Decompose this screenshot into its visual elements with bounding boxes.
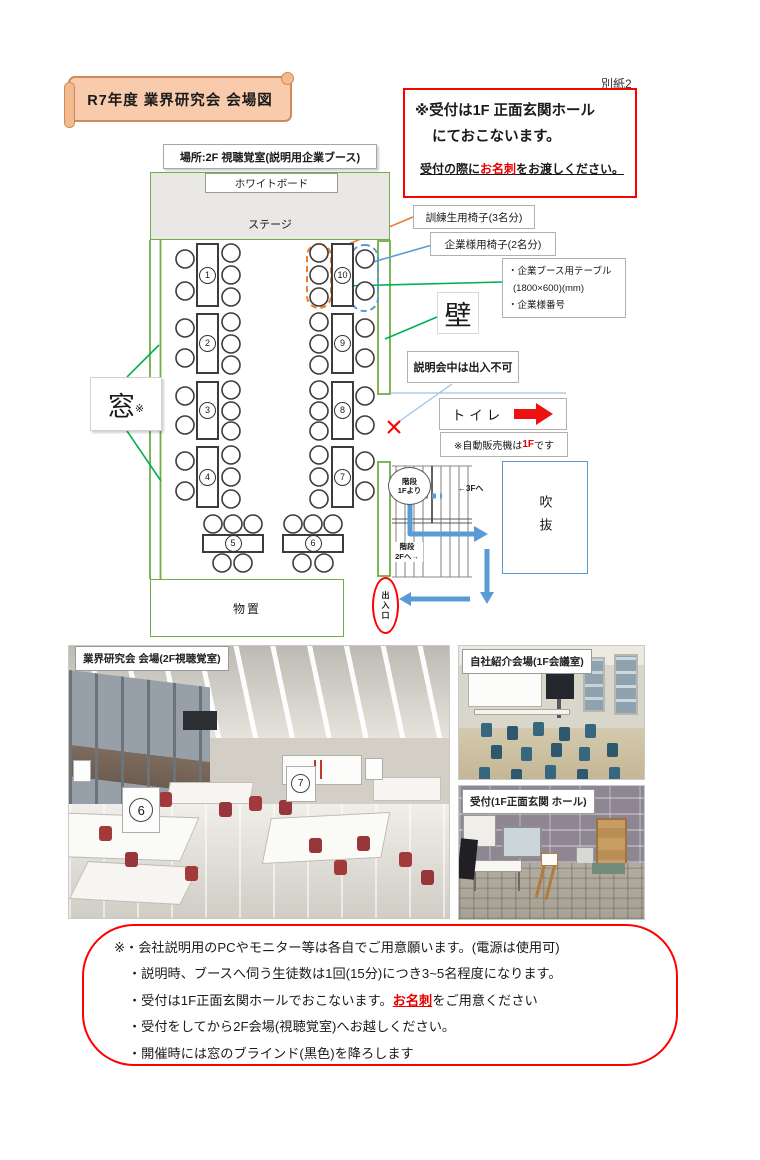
toilet-arrow-icon bbox=[514, 403, 554, 425]
reception-notice-line1: ※受付は1F 正面玄関ホール bbox=[415, 99, 627, 120]
photo1-sign-6: 6 bbox=[122, 787, 160, 833]
photo1-poster-b bbox=[320, 760, 322, 779]
location-label: 場所:2F 視聴覚室(説明用企業ブース) bbox=[163, 144, 377, 169]
booth-table-4: 4 bbox=[196, 446, 219, 508]
storage-label: 物置 bbox=[150, 579, 344, 637]
stairs-from-1f-bubble: 階段1Fより bbox=[388, 467, 431, 505]
page-title: R7年度 業界研究会 会場図 bbox=[87, 89, 273, 110]
photo2-caption: 自社紹介会場(1F会議室) bbox=[462, 649, 592, 674]
photo1-table-mid bbox=[166, 782, 253, 804]
toilet-box: トイレ bbox=[439, 398, 567, 430]
photo3-table-legs bbox=[474, 872, 476, 891]
photo-venue-2f: 6 7 bbox=[68, 645, 450, 919]
reception-notice-line2: にておこないます。 bbox=[415, 125, 627, 146]
reception-notice-box: ※受付は1F 正面玄関ホール にておこないます。 受付の際にお名刺をお渡しくださ… bbox=[403, 88, 637, 198]
booth-table-5: 5 bbox=[202, 534, 264, 553]
booth-table-8: 8 bbox=[331, 381, 354, 440]
notes-line-1: ※・会社説明用のPCやモニター等は各自でご用意願います。(電源は使用可) bbox=[114, 935, 658, 961]
photo1-sign-small bbox=[73, 760, 91, 782]
notes-line-2: ・説明時、ブースへ伺う生徒数は1回(15分)につき3~5名程度になります。 bbox=[114, 961, 658, 987]
entrance-exit-label: 出入口 bbox=[372, 577, 399, 634]
notes-line-3: ・受付は1F正面玄関ホールでおこないます。お名刺をご用意ください bbox=[114, 988, 658, 1014]
photo3-door-mat bbox=[592, 863, 625, 874]
booth-table-1: 1 bbox=[196, 243, 219, 307]
photo1-table-left2 bbox=[69, 861, 199, 905]
no-entry-cross bbox=[388, 421, 400, 433]
booth-table-2: 2 bbox=[196, 313, 219, 374]
legend-company-chairs: 企業様用椅子(2名分) bbox=[430, 232, 556, 256]
photo2-whiteboard bbox=[468, 673, 542, 708]
booth-table-6: 6 bbox=[282, 534, 344, 553]
notes-line-4: ・受付をしてから2F会場(視聴覚室)へお越しください。 bbox=[114, 1014, 658, 1040]
booth-table-7: 7 bbox=[331, 446, 354, 508]
photo2-chairs bbox=[481, 723, 492, 737]
legend-booth-table: ・企業ブース用テーブル (1800×600)(mm) ・企業様番号 bbox=[502, 258, 626, 318]
photo1-sign-small2 bbox=[365, 758, 383, 780]
atrium-label: 吹抜 bbox=[502, 461, 588, 574]
booth-table-10: 10 bbox=[331, 243, 354, 307]
photo3-display-case bbox=[502, 826, 543, 858]
photo2-tv bbox=[546, 670, 574, 699]
photo1-table-far bbox=[373, 777, 441, 801]
photo1-caption: 業界研究会 会場(2F視聴覚室) bbox=[75, 646, 229, 671]
photo1-chairs bbox=[99, 826, 112, 841]
photo1-tv-monitor bbox=[183, 711, 217, 730]
stairs-to-3f-label: ←3Fへ bbox=[458, 483, 483, 494]
wall-label: 壁 bbox=[437, 292, 479, 334]
photo3-caption: 受付(1F正面玄関 ホール) bbox=[462, 789, 595, 814]
legend-trainee-chairs: 訓練生用椅子(3名分) bbox=[413, 205, 535, 229]
booth-table-3: 3 bbox=[196, 381, 219, 440]
whiteboard-label: ホワイトボード bbox=[205, 173, 338, 193]
window-label: 窓※ bbox=[90, 377, 162, 431]
stairs-to-2f-label: 階段2Fへ→ bbox=[391, 542, 423, 562]
vending-note: ※自動販売機は1Fです bbox=[440, 432, 568, 457]
photo3-easel-sign bbox=[541, 853, 558, 866]
booth-table-9: 9 bbox=[331, 313, 354, 374]
photo1-sign-7: 7 bbox=[286, 766, 316, 802]
stage-label: ステージ bbox=[150, 216, 390, 232]
notes-line-5: ・開催時には窓のブラインド(黒色)を降ろします bbox=[114, 1041, 658, 1067]
photo1-table-right bbox=[261, 812, 389, 864]
reception-notice-line3: 受付の際にお名刺をお渡しください。 bbox=[415, 160, 627, 177]
title-banner: R7年度 業界研究会 会場図 bbox=[68, 76, 292, 122]
photo2-front-table bbox=[474, 709, 570, 716]
notes-box: ※・会社説明用のPCやモニター等は各自でご用意願います。(電源は使用可) ・説明… bbox=[82, 924, 678, 1066]
photo3-reception-table bbox=[470, 860, 522, 872]
no-entry-label: 説明会中は出入不可 bbox=[407, 351, 519, 383]
photo2-window-b bbox=[614, 654, 638, 715]
